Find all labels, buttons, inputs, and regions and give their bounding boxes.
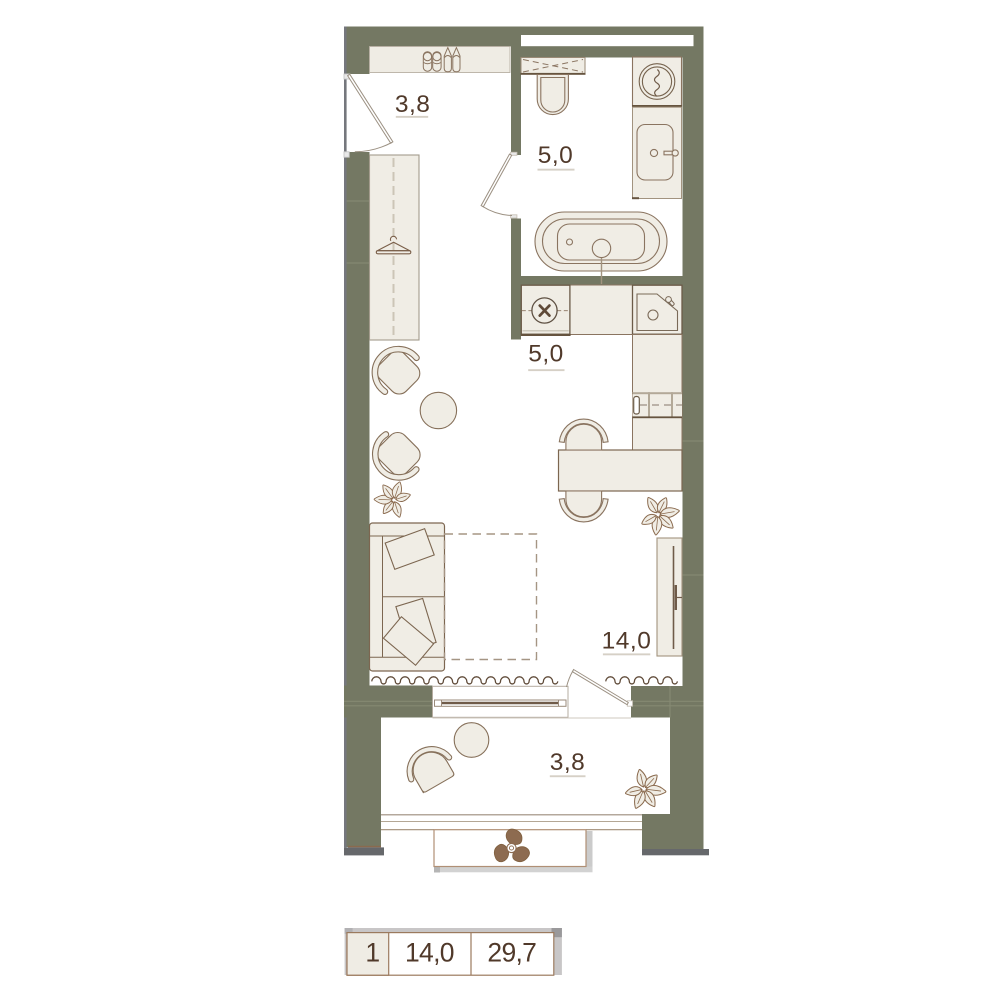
- svg-text:5,0: 5,0: [528, 341, 564, 368]
- svg-text:3,8: 3,8: [550, 749, 586, 776]
- svg-text:1: 1: [365, 937, 380, 967]
- svg-text:3,8: 3,8: [395, 91, 431, 118]
- svg-text:5,0: 5,0: [538, 142, 574, 169]
- svg-text:29,7: 29,7: [487, 937, 536, 967]
- svg-text:14,0: 14,0: [405, 937, 454, 967]
- svg-text:14,0: 14,0: [602, 627, 652, 654]
